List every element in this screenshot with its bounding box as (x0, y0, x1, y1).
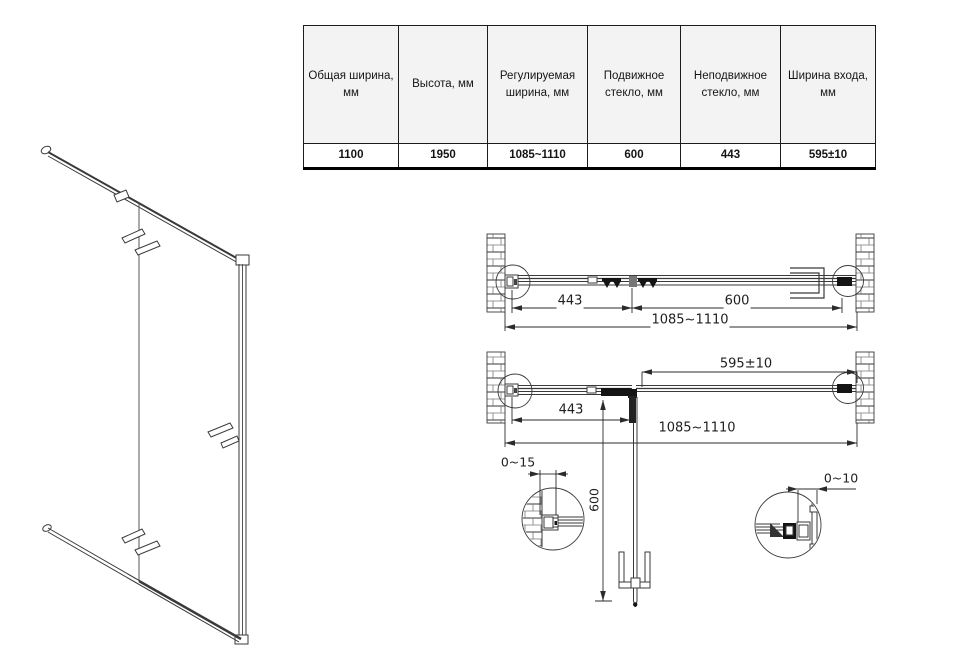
dims-detail-right (786, 489, 856, 522)
plan-view-open (487, 352, 874, 607)
wall-right-open (856, 352, 874, 423)
wall-left-open (487, 352, 505, 423)
dim-label-total-width-closed: 1085~1110 (650, 313, 729, 328)
dim-label-door-open-depth: 600 (587, 487, 602, 513)
wall-right (856, 234, 874, 312)
dim-label-fixed-glass-open: 443 (558, 403, 585, 418)
wall-left (487, 234, 505, 312)
dim-label-entry-width: 595±10 (719, 357, 773, 372)
door-handle (208, 423, 239, 448)
frame-top-cap (236, 255, 249, 265)
dim-label-door-glass-closed: 600 (724, 294, 751, 309)
isometric-door-view (40, 145, 249, 644)
hinge-top (122, 229, 160, 255)
handle-top-view (790, 268, 824, 298)
technical-drawing (0, 0, 961, 650)
shower-door-spec-sheet: Общая ширина, мм Высота, мм Регулируемая… (0, 0, 961, 650)
door-pivot-tip (633, 602, 637, 606)
hinge-bottom (122, 529, 160, 555)
dim-label-fixed-glass-closed: 443 (557, 294, 584, 309)
dim-label-wall-adjust-left: 0~15 (500, 455, 536, 470)
door-handle-open (619, 552, 650, 588)
detail-right-wall-profile (755, 489, 856, 558)
dim-label-total-width-open: 1085~1110 (657, 421, 736, 436)
detail-left-wall-profile (522, 470, 584, 551)
dim-label-wall-adjust-right: 0~10 (823, 471, 859, 486)
